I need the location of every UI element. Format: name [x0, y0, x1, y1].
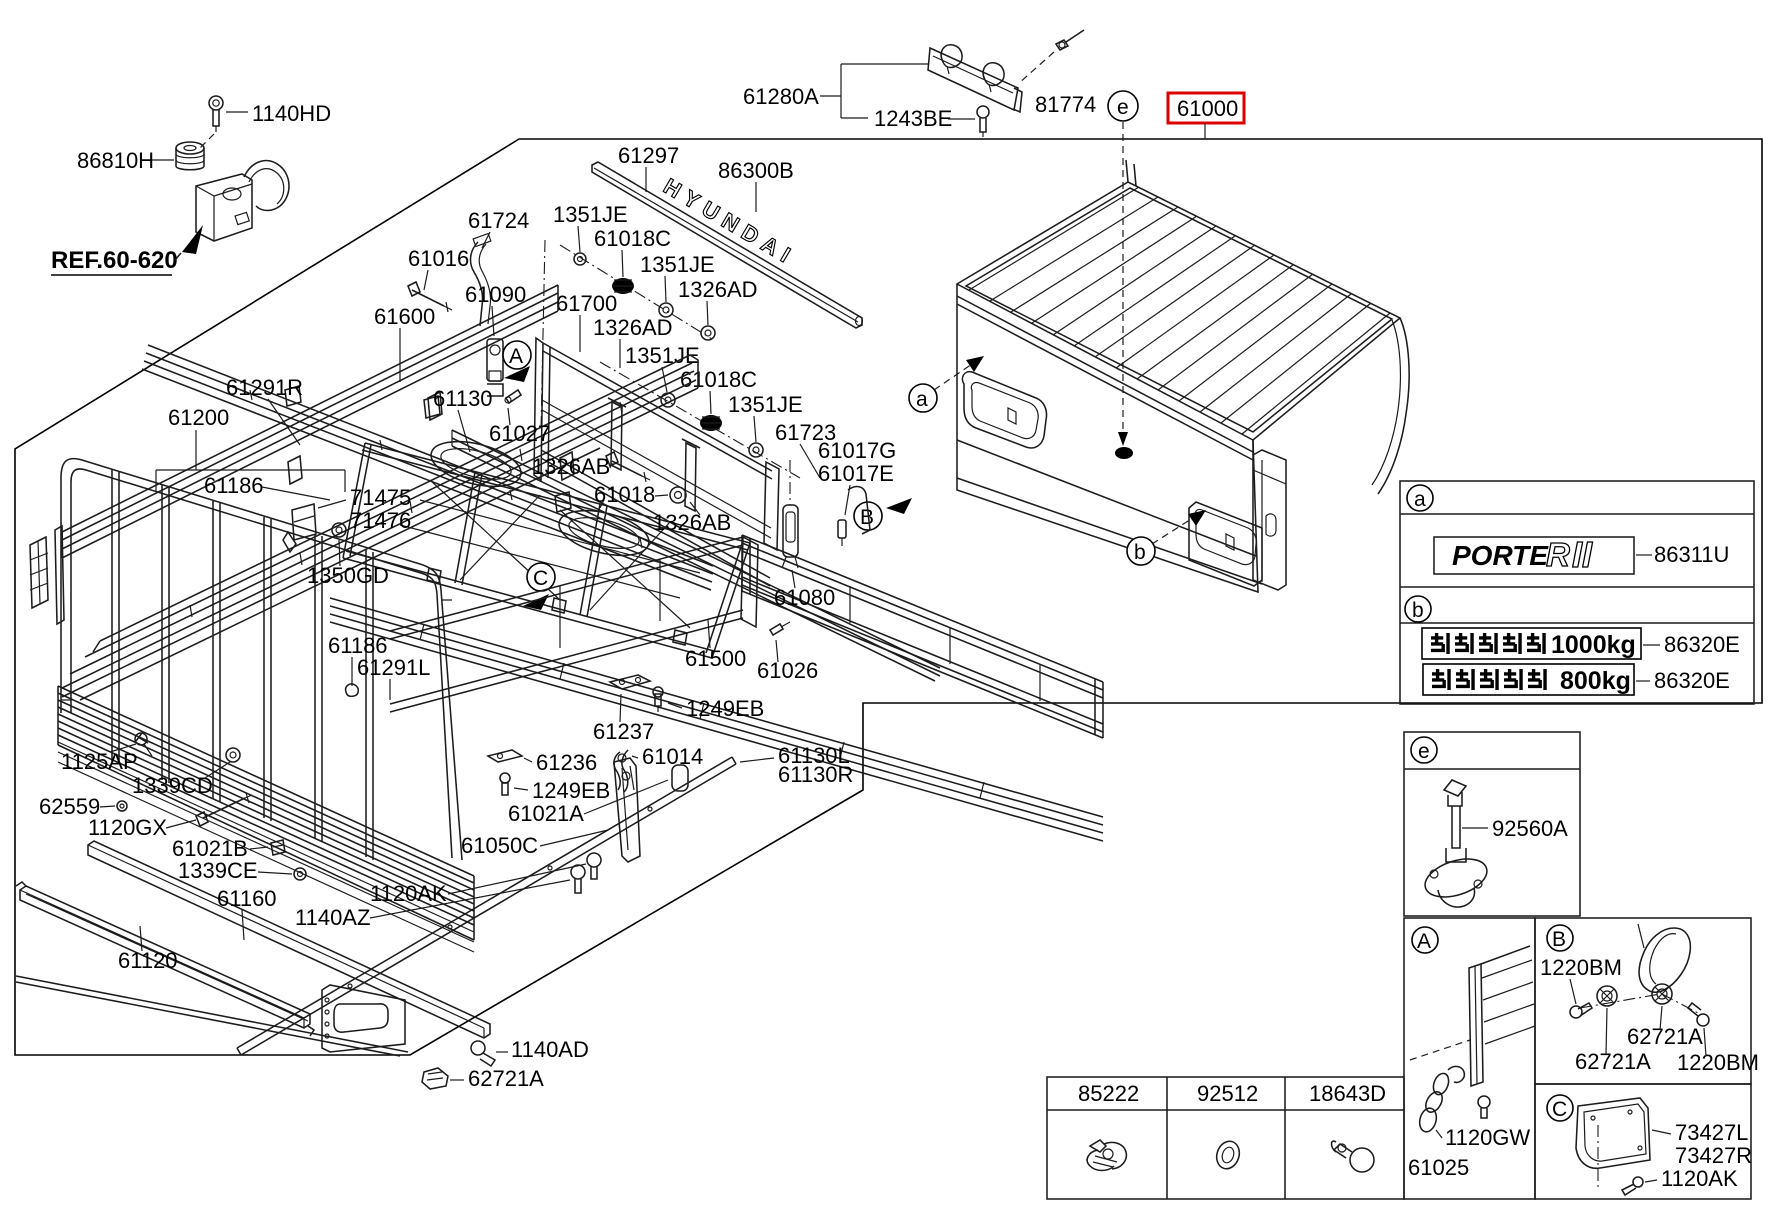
svg-text:61080: 61080 [774, 585, 835, 610]
svg-text:86300B: 86300B [718, 158, 794, 183]
svg-text:61016: 61016 [408, 246, 469, 271]
svg-text:81774: 81774 [1035, 92, 1096, 117]
svg-text:1326AB: 1326AB [532, 454, 610, 479]
svg-text:61027: 61027 [489, 421, 550, 446]
svg-text:1351JE: 1351JE [728, 392, 803, 417]
svg-text:85222: 85222 [1078, 1081, 1139, 1106]
svg-text:1326AD: 1326AD [593, 315, 673, 340]
svg-text:61186: 61186 [204, 473, 264, 498]
svg-text:18643D: 18643D [1309, 1081, 1386, 1106]
svg-text:1339CE: 1339CE [178, 858, 258, 883]
svg-text:1120AK: 1120AK [1661, 1166, 1738, 1191]
svg-text:61700: 61700 [556, 291, 617, 316]
svg-text:1000kg: 1000kg [1551, 631, 1636, 659]
svg-text:61000: 61000 [1177, 96, 1238, 121]
svg-text:1220BM: 1220BM [1540, 955, 1622, 980]
svg-text:92560A: 92560A [1492, 816, 1568, 841]
svg-text:A: A [509, 345, 523, 368]
svg-text:61236: 61236 [536, 750, 597, 775]
svg-text:62721A: 62721A [1627, 1024, 1703, 1049]
svg-text:61025: 61025 [1408, 1155, 1469, 1180]
svg-text:1249EB: 1249EB [686, 696, 764, 721]
svg-text:1339CD: 1339CD [132, 773, 213, 798]
svg-text:1140AZ: 1140AZ [295, 905, 370, 930]
svg-text:86320E: 86320E [1654, 668, 1730, 693]
svg-text:61724: 61724 [468, 208, 529, 233]
svg-text:B: B [1552, 928, 1566, 951]
svg-text:61017G: 61017G [818, 438, 896, 463]
svg-text:61130: 61130 [433, 386, 493, 411]
svg-text:61050C: 61050C [461, 833, 538, 858]
svg-text:61600: 61600 [374, 304, 435, 329]
svg-text:1243BE: 1243BE [874, 106, 952, 131]
svg-text:61200: 61200 [168, 405, 229, 430]
svg-text:61280A: 61280A [743, 84, 819, 109]
svg-text:61297: 61297 [618, 143, 679, 168]
svg-text:92512: 92512 [1197, 1081, 1258, 1106]
svg-text:e: e [1117, 96, 1129, 119]
svg-text:1120AK: 1120AK [370, 881, 447, 906]
svg-text:b: b [1134, 541, 1146, 564]
svg-text:71475: 71475 [350, 485, 411, 510]
svg-text:1120GW: 1120GW [1445, 1125, 1530, 1150]
svg-text:61021A: 61021A [508, 801, 584, 826]
svg-text:61130R: 61130R [778, 762, 853, 787]
svg-text:b: b [1412, 599, 1424, 622]
svg-text:61018: 61018 [594, 482, 655, 507]
svg-text:1125AP: 1125AP [61, 749, 138, 774]
svg-text:1220BM: 1220BM [1677, 1050, 1759, 1075]
svg-text:C: C [1552, 1098, 1567, 1121]
svg-text:PORTE: PORTE [1452, 540, 1549, 571]
svg-text:1350GD: 1350GD [307, 563, 389, 588]
svg-text:71476: 71476 [350, 508, 411, 533]
svg-text:61026: 61026 [757, 658, 818, 683]
svg-text:61237: 61237 [593, 719, 654, 744]
svg-text:a: a [1414, 488, 1426, 511]
svg-text:86320E: 86320E [1664, 632, 1740, 657]
svg-text:1140AD: 1140AD [511, 1037, 589, 1062]
svg-text:61018C: 61018C [594, 226, 671, 251]
svg-text:62721A: 62721A [1575, 1049, 1651, 1074]
svg-text:1351JE: 1351JE [640, 252, 715, 277]
svg-text:1140HD: 1140HD [252, 101, 331, 126]
svg-text:a: a [916, 388, 928, 411]
svg-text:61500: 61500 [685, 646, 746, 671]
svg-text:61160: 61160 [217, 886, 277, 911]
svg-text:1351JE: 1351JE [553, 202, 628, 227]
svg-text:1249EB: 1249EB [532, 778, 610, 803]
svg-text:73427L: 73427L [1675, 1120, 1748, 1145]
svg-text:61120: 61120 [118, 948, 178, 973]
svg-text:1326AB: 1326AB [653, 510, 731, 535]
svg-text:C: C [533, 567, 548, 590]
svg-text:1120GX: 1120GX [88, 815, 167, 840]
svg-text:61291R: 61291R [226, 375, 303, 400]
svg-text:86311U: 86311U [1654, 542, 1729, 567]
svg-text:61014: 61014 [642, 744, 703, 769]
svg-text:62721A: 62721A [468, 1066, 544, 1091]
svg-text:A: A [1417, 930, 1431, 953]
svg-text:1326AD: 1326AD [678, 277, 758, 302]
svg-text:e: e [1418, 740, 1430, 763]
svg-text:73427R: 73427R [1675, 1143, 1752, 1168]
svg-text:61017E: 61017E [818, 461, 894, 486]
svg-text:61291L: 61291L [357, 655, 430, 680]
svg-text:800kg: 800kg [1560, 667, 1631, 695]
svg-text:R: R [1546, 536, 1570, 573]
svg-text:II: II [1572, 534, 1593, 575]
svg-text:61090: 61090 [465, 282, 526, 307]
svg-text:86810H: 86810H [77, 148, 154, 173]
svg-text:61018C: 61018C [680, 367, 757, 392]
svg-text:REF.60-620: REF.60-620 [51, 247, 178, 274]
